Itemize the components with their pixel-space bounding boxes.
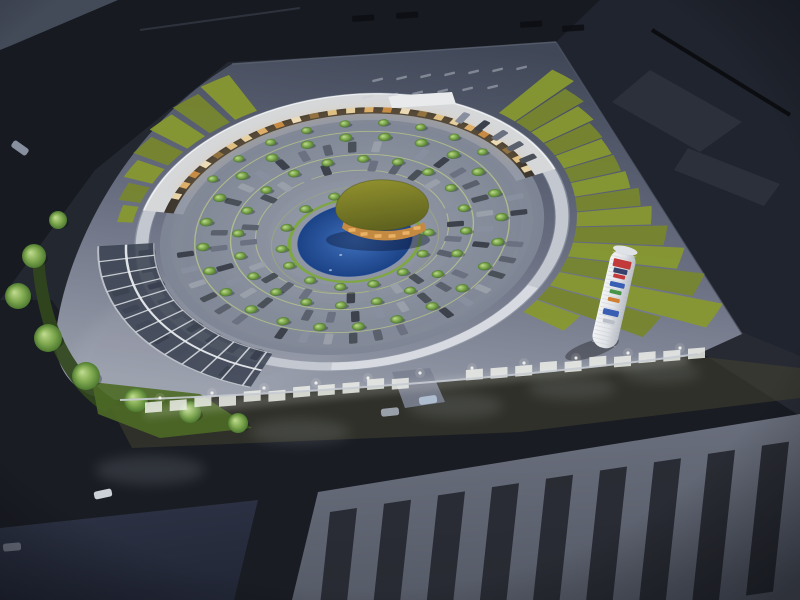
architectural-rendering [0, 0, 800, 600]
vignette-layer [0, 0, 800, 600]
scene-canvas [0, 0, 800, 600]
vignette [0, 0, 800, 600]
